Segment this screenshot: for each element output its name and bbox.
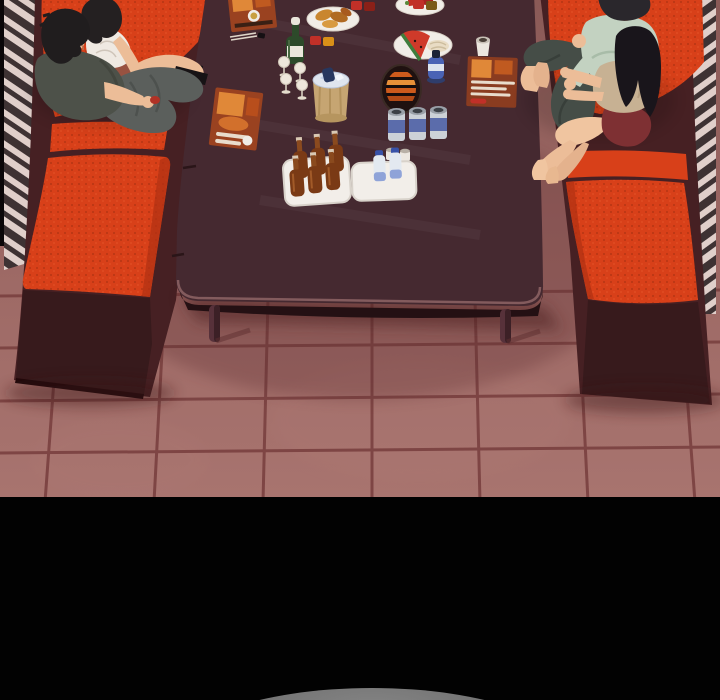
charcoal-grill [381, 65, 421, 113]
white-cup [476, 37, 490, 57]
bench-seat-seam-right [566, 150, 688, 180]
menu-card-top [227, 0, 277, 32]
panel-gutter [0, 497, 720, 700]
bench-front-left [16, 290, 152, 394]
menu-card-right [466, 56, 518, 108]
comic-panel [0, 0, 720, 700]
ice-bucket [313, 67, 349, 123]
beer-cans [388, 106, 447, 141]
menu-card-left [209, 87, 264, 150]
